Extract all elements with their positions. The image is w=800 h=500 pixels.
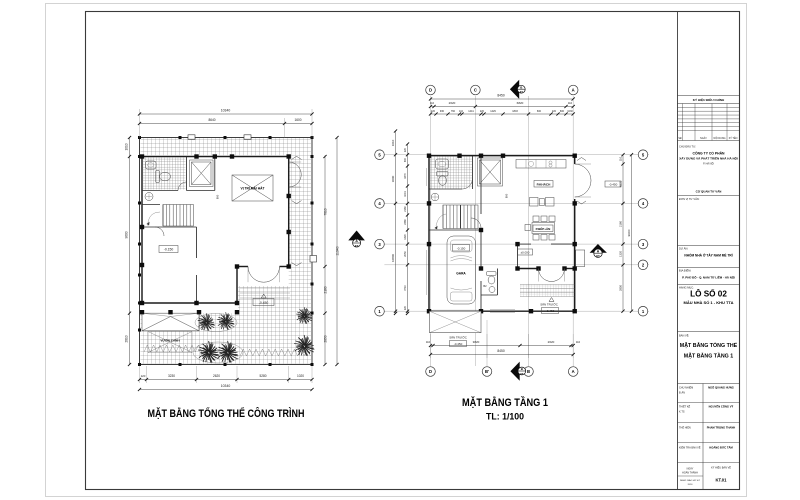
svg-text:KIỂM TRA BẢN VẼ: KIỂM TRA BẢN VẼ [679,447,701,450]
svg-text:760: 760 [451,110,456,113]
svg-text:-0.150: -0.150 [457,246,466,250]
svg-text:2620: 2620 [449,101,456,105]
svg-text:5280: 5280 [259,374,266,378]
svg-text:600: 600 [537,110,542,113]
svg-text:KT: KT [520,373,524,376]
svg-text:SĐ: SĐ [678,137,682,140]
svg-text:2850: 2850 [324,335,328,342]
svg-text:THIẾT KẾ: THIẾT KẾ [679,406,691,409]
svg-text:3820: 3820 [473,340,480,344]
svg-text:KÝ HIỆU ĐIỀU CHỈNH: KÝ HIỆU ĐIỀU CHỈNH [693,97,725,102]
svg-text:220: 220 [552,110,557,113]
svg-text:KT: KT [596,254,600,258]
svg-text:110: 110 [426,340,431,344]
svg-text:C: C [474,88,477,93]
svg-text:1803: 1803 [512,110,518,113]
svg-text:K.TS: K.TS [679,411,685,414]
svg-text:MẶT BẰNG TỔNG THỂ: MẶT BẰNG TỔNG THỂ [680,341,738,349]
svg-text:KÝ HIỆU BẢN VẼ: KÝ HIỆU BẢN VẼ [711,467,731,470]
svg-text:2160: 2160 [324,286,328,293]
svg-text:1001: 1001 [404,191,407,197]
svg-text:10340: 10340 [221,384,231,388]
svg-text:CƠ QUAN TƯ VẤN: CƠ QUAN TƯ VẤN [696,190,722,194]
svg-text:PHẠM TRỌNG THANH: PHẠM TRỌNG THANH [707,426,736,430]
svg-text:GARA: GARA [456,272,466,276]
svg-text:NGÀY GIAO HỒ SƠ: NGÀY GIAO HỒ SƠ [680,479,700,482]
svg-text:LÔ SỐ 02: LÔ SỐ 02 [690,288,727,299]
svg-text:TL: 1/100: TL: 1/100 [486,412,524,422]
svg-text:B2: B2 [483,284,487,288]
svg-text:2850: 2850 [619,285,623,291]
svg-text:MẶT BẰNG TỔNG THỂ CÔNG TRÌNH: MẶT BẰNG TỔNG THỂ CÔNG TRÌNH [148,407,305,420]
svg-text:P. HÀ NỘI: P. HÀ NỘI [703,163,714,166]
svg-text:220: 220 [404,305,407,310]
svg-text:CÔNG TY CỔ PHẦN: CÔNG TY CỔ PHẦN [693,151,726,156]
svg-text:1670: 1670 [404,173,407,179]
svg-text:2620: 2620 [213,374,220,378]
svg-text:HOÀN THÀNH: HOÀN THÀNH [682,472,698,475]
svg-text:NỘI DUNG: NỘI DUNG [714,137,726,140]
svg-text:4870: 4870 [619,181,623,187]
svg-text:P. PHÚ ĐÔ - Q. NAM TỪ LIÊM - H: P. PHÚ ĐÔ - Q. NAM TỪ LIÊM - HÀ NỘI [682,275,735,280]
svg-text:11340: 11340 [336,246,340,255]
svg-text:110: 110 [568,101,573,105]
svg-text:1010: 1010 [125,143,129,150]
svg-text:1320: 1320 [619,251,623,257]
svg-text:VƯỜN CẢNH: VƯỜN CẢNH [160,338,180,343]
svg-text:SÂN TRƯỚC: SÂN TRƯỚC [449,335,467,340]
svg-text:VỊ TRÍ MÁI HẮT: VỊ TRÍ MÁI HẮT [241,186,265,191]
svg-text:2620: 2620 [548,340,555,344]
svg-text:XÂY DỰNG VÀ PHÁT TRIỂN NHÀ HÀ: XÂY DỰNG VÀ PHÁT TRIỂN NHÀ HÀ NỘI [679,156,738,161]
svg-text:9600: 9600 [125,231,129,238]
svg-text:1441: 1441 [468,110,474,113]
svg-text:NGÀY: NGÀY [700,137,707,140]
svg-text:1030: 1030 [567,110,573,113]
svg-text:NHÓM NHÀ Ở TÂY NAM MỄ TRÌ: NHÓM NHÀ Ở TÂY NAM MỄ TRÌ [684,253,732,258]
svg-text:-0.450: -0.450 [609,183,618,187]
svg-text:DỰ ÁN:: DỰ ÁN: [679,247,688,251]
svg-text:KÝ TÊN: KÝ TÊN [729,137,738,140]
svg-text:THỂ HIỆN: THỂ HIỆN [679,427,691,430]
svg-text:7810: 7810 [324,208,328,215]
svg-text:220: 220 [431,110,436,113]
svg-text:220: 220 [404,147,407,152]
svg-text:120: 120 [141,374,146,378]
svg-text:KT: KT [355,244,359,248]
svg-text:1429: 1429 [490,110,496,113]
svg-text:-0.150: -0.150 [164,248,174,252]
svg-text:110: 110 [576,340,581,344]
svg-text:KT.01: KT.01 [716,478,728,483]
svg-text:1020: 1020 [297,374,304,378]
svg-text:P.KHÁCH: P.KHÁCH [537,181,551,186]
svg-text:NGÀY: NGÀY [687,468,694,471]
svg-text:110: 110 [430,101,435,105]
svg-text:2016: 2016 [688,484,694,486]
svg-text:MẪU NHÀ SỐ 1 - KHU TTA: MẪU NHÀ SỐ 1 - KHU TTA [684,300,734,305]
svg-text:8450: 8450 [497,94,505,98]
svg-text:900: 900 [404,157,407,162]
svg-text:110: 110 [459,110,464,113]
svg-text:P.BẾP+ĂN: P.BẾP+ĂN [536,226,551,231]
svg-text:8640: 8640 [208,118,215,122]
svg-text:2380: 2380 [404,219,407,225]
svg-text:3710: 3710 [404,285,407,291]
svg-text:3230: 3230 [168,374,175,378]
svg-text:B: B [527,369,530,374]
svg-text:±0.000: ±0.000 [521,251,530,255]
svg-text:600: 600 [560,110,565,113]
svg-text:D: D [429,369,432,374]
svg-text:SÂN TRƯỚC: SÂN TRƯỚC [540,302,558,307]
svg-text:930: 930 [440,110,445,113]
svg-text:2160: 2160 [619,221,623,227]
svg-text:10800: 10800 [391,254,395,262]
svg-text:1600: 1600 [294,118,301,122]
svg-text:2160: 2160 [404,206,407,212]
svg-text:CHỦ NHIỆM: CHỦ NHIỆM [679,387,693,390]
svg-text:2050: 2050 [404,251,407,257]
svg-text:KT: KT [520,91,524,94]
svg-text:B': B' [485,369,489,374]
svg-text:D: D [429,88,432,93]
svg-text:110: 110 [619,156,623,161]
svg-text:-0.450: -0.450 [259,301,269,305]
svg-text:MẶT BẰNG TẦNG 1: MẶT BẰNG TẦNG 1 [684,352,733,360]
svg-text:MẶT BẰNG TẦNG 1: MẶT BẰNG TẦNG 1 [462,396,548,409]
svg-text:6820: 6820 [517,101,524,105]
svg-text:3000: 3000 [391,175,395,182]
svg-text:10340: 10340 [221,109,231,113]
svg-text:600: 600 [216,194,220,199]
svg-text:A: A [572,369,575,374]
svg-text:8450: 8450 [497,349,505,353]
svg-text:A: A [572,88,575,93]
svg-text:-0.450: -0.450 [546,309,555,313]
svg-text:220: 220 [480,110,485,113]
svg-text:600: 600 [505,193,509,198]
svg-text:2810: 2810 [125,335,129,342]
svg-text:9600: 9600 [627,229,631,236]
svg-text:Đ.ÁN: Đ.ÁN [679,392,685,395]
svg-text:1010: 1010 [391,139,395,146]
svg-text:1320: 1320 [404,234,407,240]
